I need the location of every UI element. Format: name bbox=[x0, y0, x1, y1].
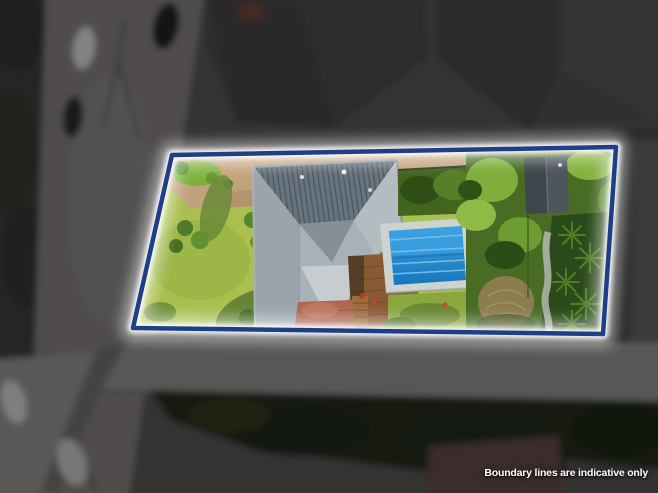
boundary-disclaimer: Boundary lines are indicative only bbox=[484, 467, 648, 479]
garden-path bbox=[545, 232, 549, 334]
roof-vent bbox=[342, 170, 347, 175]
swimming-pool bbox=[380, 218, 475, 293]
toy-red-dot bbox=[443, 303, 448, 308]
garden-shed bbox=[524, 156, 569, 214]
red-object bbox=[372, 300, 377, 305]
scene-canvas bbox=[0, 0, 658, 493]
red-object bbox=[359, 293, 365, 299]
roof-vent bbox=[300, 175, 304, 179]
aerial-property-photo: Boundary lines are indicative only bbox=[0, 0, 658, 493]
roof-vent bbox=[368, 188, 372, 192]
